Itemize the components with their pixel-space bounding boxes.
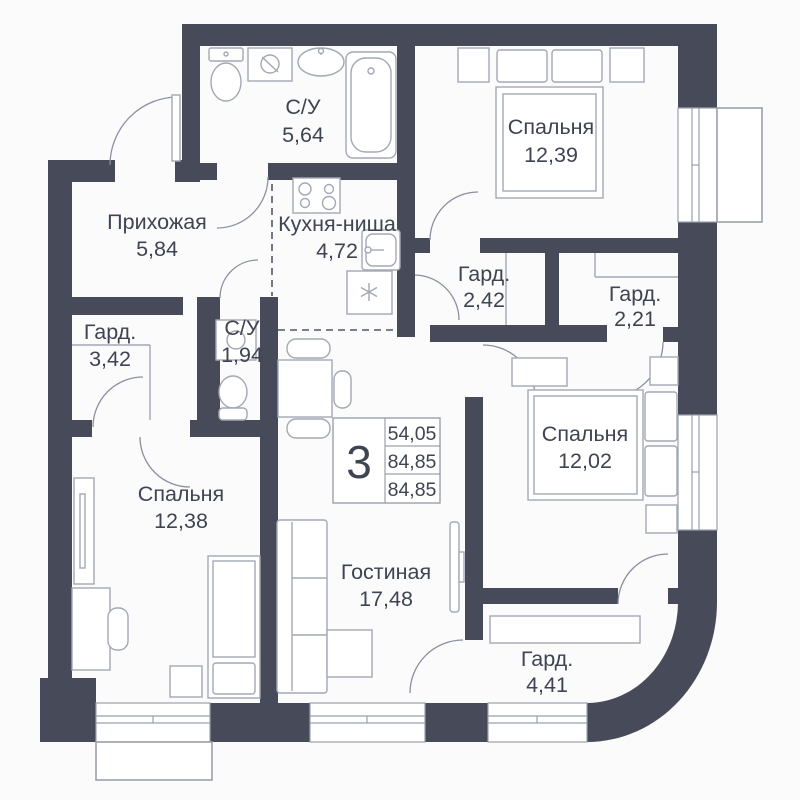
fridge-icon (347, 271, 392, 314)
room-label-name: Гард. (609, 282, 661, 306)
room-bathroom-main: С/У 5,64 (282, 95, 324, 147)
room-label-name: Гостиная (341, 560, 431, 584)
room-label-name: С/У (224, 316, 260, 340)
legend-box: 3 54,05 84,85 84,85 (333, 418, 440, 503)
window-bottom-wardrobe (488, 703, 587, 742)
washing-machine-icon (248, 48, 292, 81)
room-wardrobe-1: Гард. 2,42 (458, 262, 510, 312)
room-label-name: Спальня (508, 115, 594, 139)
door-bathroom-main (217, 177, 268, 228)
room-label-name: Гард. (521, 647, 573, 671)
window-top-right (678, 108, 717, 222)
toilet-icon (209, 48, 243, 101)
door-wardrobe-4 (618, 554, 668, 604)
room-label-area: 1,94 (221, 343, 263, 367)
door-bedroom-left (140, 437, 190, 487)
stove-icon (293, 178, 340, 213)
balcony-bottom (96, 742, 212, 780)
room-label-area: 12,38 (154, 509, 208, 533)
room-bedroom-left: Спальня 12,38 (138, 482, 224, 533)
room-label-area: 17,48 (359, 587, 413, 611)
room-label-area: 2,42 (463, 288, 505, 312)
room-label-area: 12,39 (524, 143, 578, 167)
bed-icon (170, 556, 260, 698)
door-wardrobe-3 (93, 377, 143, 427)
door-bedroom-top (430, 192, 478, 240)
floor-plan-canvas: С/У 5,64 Спальня 12,39 Прихожая 5,84 Кух… (0, 0, 800, 800)
toilet-icon (219, 376, 247, 420)
room-label-name: Спальня (138, 482, 224, 506)
legend-area-value: 84,85 (388, 479, 437, 501)
legend-area-value: 54,05 (388, 423, 437, 445)
tv-icon (450, 522, 464, 612)
window-bottom-bedroom (96, 703, 210, 742)
room-wardrobe-4: Гард. 4,41 (521, 647, 573, 697)
balcony-right (717, 108, 762, 222)
desk-icon (72, 588, 128, 670)
room-label-area: 12,02 (558, 449, 612, 473)
door-living-room (410, 640, 463, 693)
room-wardrobe-2: Гард. 2,21 (609, 282, 661, 331)
room-label-name: Кухня-ниша (278, 212, 396, 236)
chair-icon (287, 339, 330, 358)
room-label-area: 3,42 (89, 347, 131, 371)
room-label-name: Спальня (542, 422, 628, 446)
room-hallway: Прихожая 5,84 (107, 210, 207, 261)
room-label-name: Гард. (458, 262, 510, 286)
bathtub-icon (346, 52, 396, 158)
room-label-name: С/У (285, 95, 321, 119)
sink-icon (298, 48, 344, 76)
door-wardrobe-1 (415, 275, 459, 320)
kitchen-sink-icon (362, 230, 400, 270)
legend-rooms-count: 3 (346, 436, 372, 488)
room-label-name: Гард. (84, 320, 136, 344)
room-label-area: 2,21 (614, 307, 656, 331)
window-bottom-living (310, 703, 425, 742)
room-label-area: 4,72 (316, 239, 358, 263)
window-right (678, 415, 717, 530)
room-label-area: 5,64 (282, 123, 324, 147)
sofa-icon (277, 520, 372, 693)
chair-icon (334, 371, 351, 408)
room-label-area: 4,41 (526, 673, 568, 697)
door-entrance (110, 97, 178, 165)
room-label-name: Прихожая (107, 210, 207, 234)
legend-area-value: 84,85 (388, 451, 437, 473)
door-bathroom-small (220, 260, 258, 298)
room-label-area: 5,84 (136, 237, 178, 261)
chair-icon (287, 419, 330, 438)
room-living-room: Гостиная 17,48 (341, 560, 431, 611)
tv-icon (74, 478, 94, 584)
floor-plan-page: С/У 5,64 Спальня 12,39 Прихожая 5,84 Кух… (0, 0, 800, 800)
door-entrance-leaf (172, 95, 180, 161)
